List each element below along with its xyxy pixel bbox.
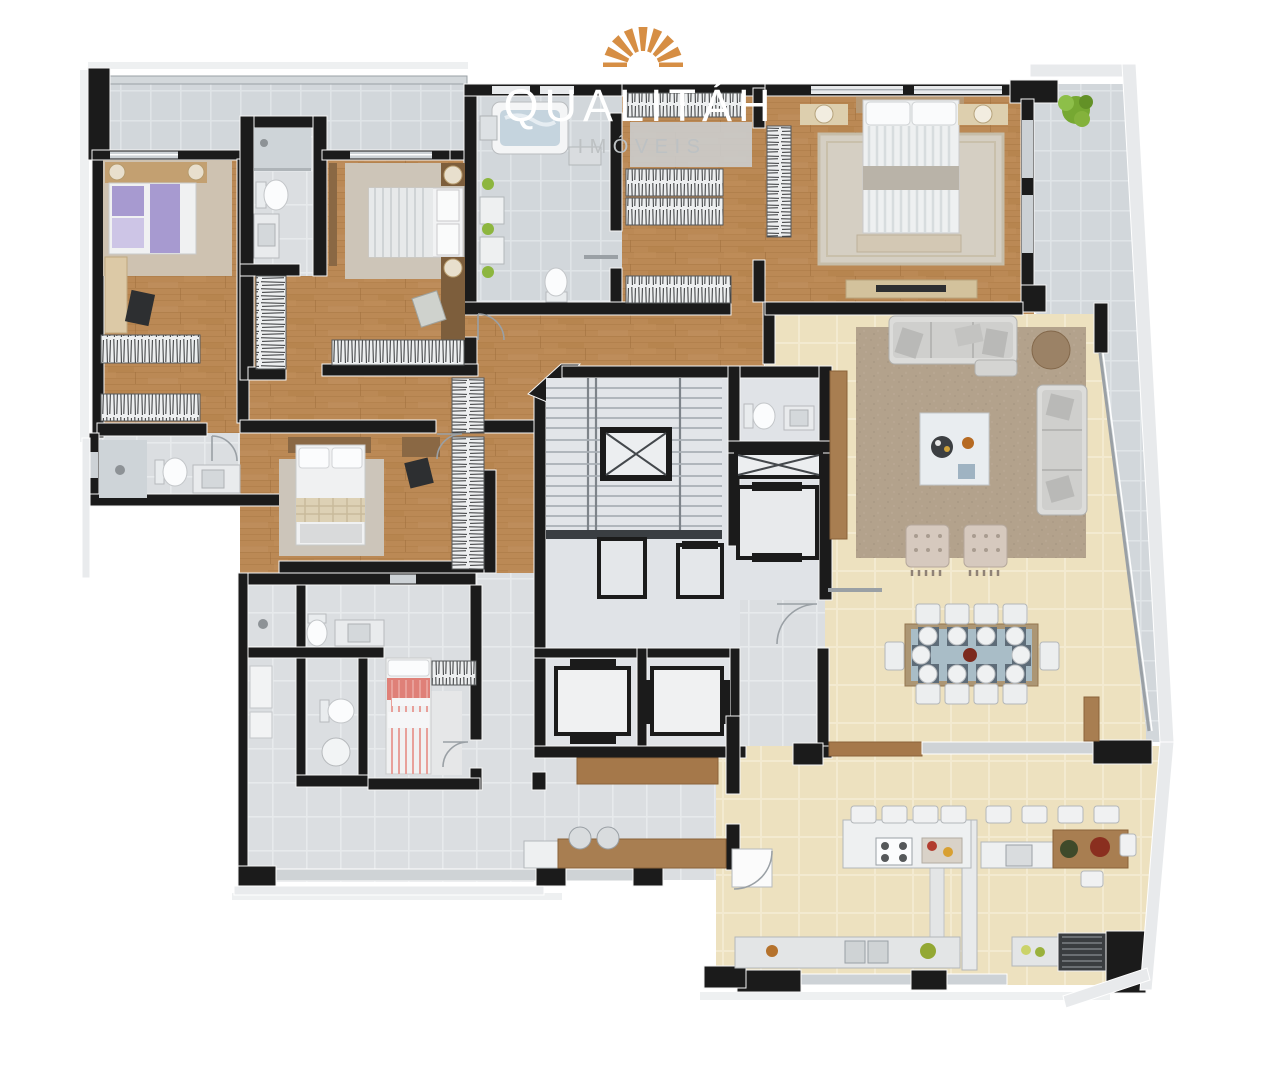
svg-text:QUALITÁH: QUALITÁH [503,80,776,131]
svg-text:IMÓVEIS: IMÓVEIS [578,135,707,158]
